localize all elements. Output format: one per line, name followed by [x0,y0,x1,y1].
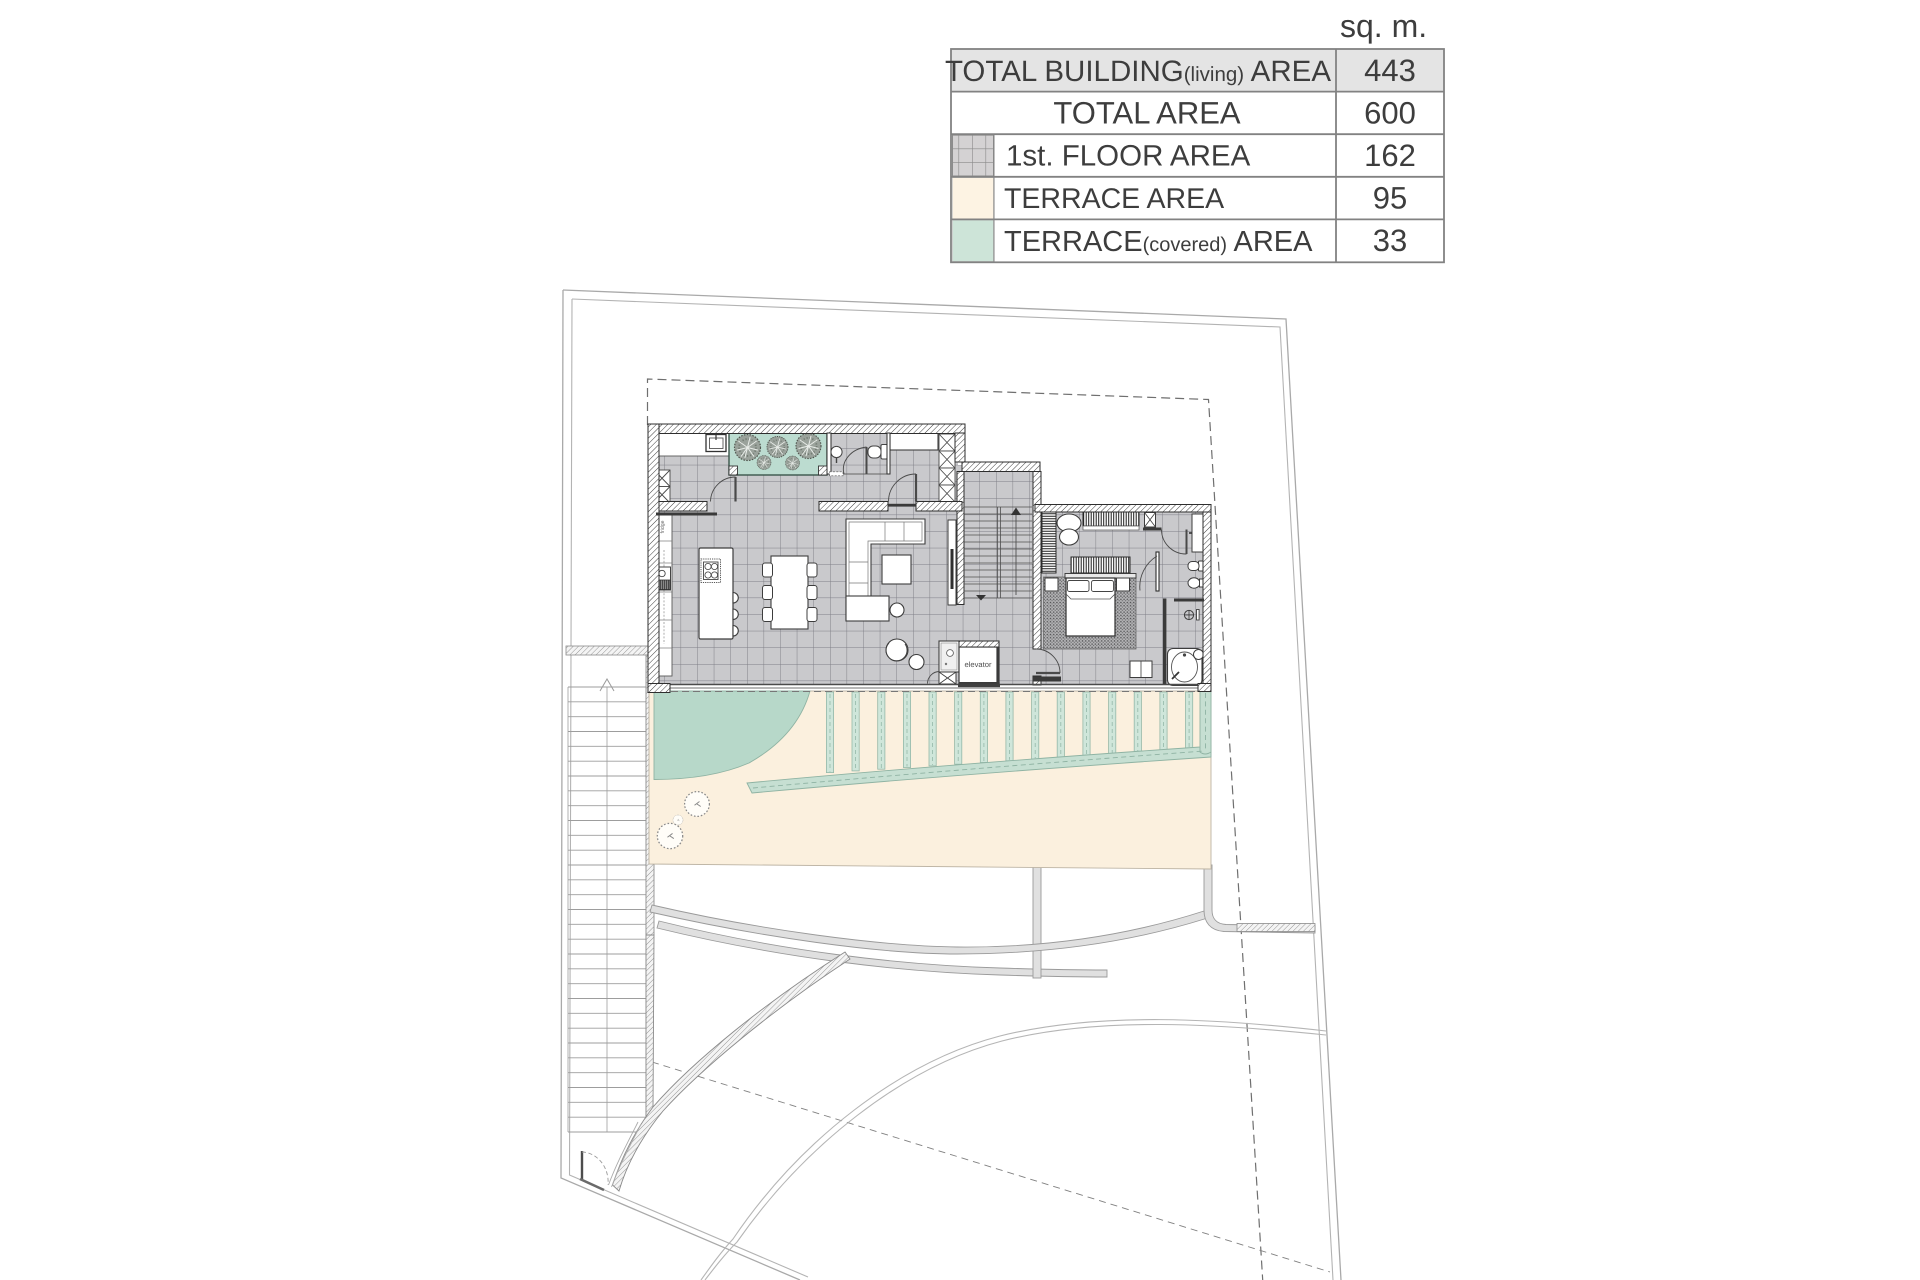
svg-text:TERRACE AREA: TERRACE AREA [1004,183,1224,215]
svg-text:elevator: elevator [964,660,991,669]
svg-text:sq. m.: sq. m. [1340,8,1427,44]
svg-text:1st. FLOOR AREA: 1st. FLOOR AREA [1006,140,1251,173]
svg-text:600: 600 [1364,96,1416,131]
svg-text:fridge: fridge [660,520,666,533]
svg-text:33: 33 [1373,223,1407,258]
svg-text:TOTAL BUILDING(living) AREA: TOTAL BUILDING(living) AREA [945,55,1331,88]
svg-text:443: 443 [1364,53,1416,88]
svg-text:95: 95 [1373,181,1407,216]
svg-text:TOTAL AREA: TOTAL AREA [1053,96,1241,131]
svg-text:162: 162 [1364,138,1416,173]
